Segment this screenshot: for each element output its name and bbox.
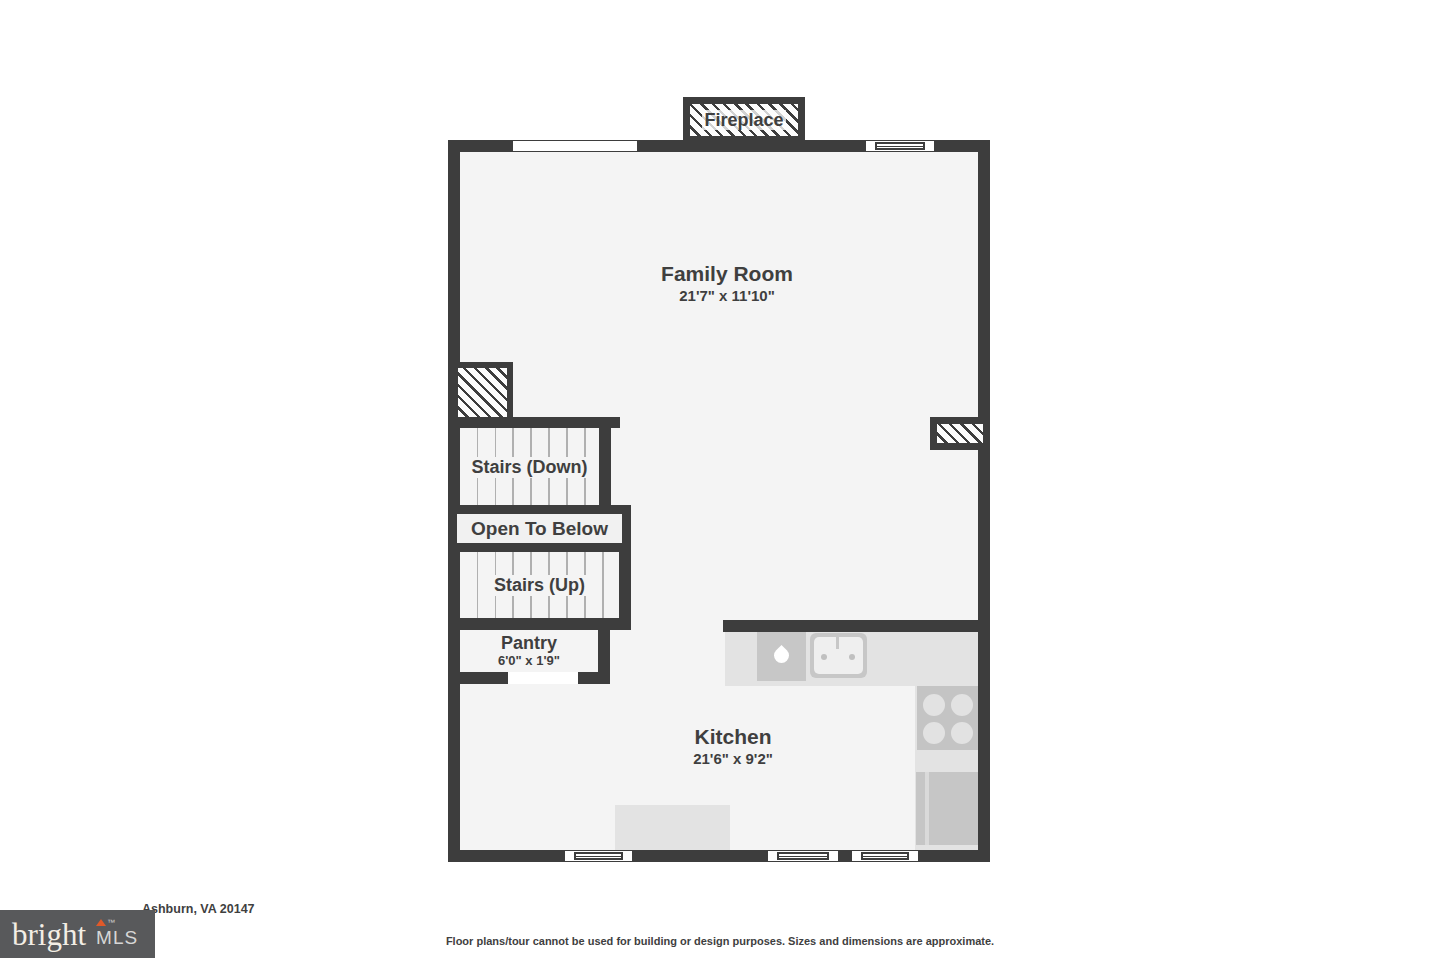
chimney-chase-symbol bbox=[452, 362, 513, 423]
logo-brand-text: bright bbox=[12, 919, 86, 950]
hatch-fill bbox=[458, 368, 507, 417]
pantry-label: Pantry bbox=[501, 633, 557, 653]
window-symbol bbox=[513, 141, 637, 151]
property-address: Ashburn, VA 20147 bbox=[142, 902, 255, 916]
logo-suffix-text: MLS bbox=[96, 927, 138, 949]
window-symbol bbox=[866, 141, 934, 151]
room-dimensions: 21'7" x 11'10" bbox=[661, 286, 793, 306]
window-frame bbox=[574, 852, 623, 860]
wall-segment bbox=[723, 620, 990, 632]
fireplace-label: Fireplace bbox=[702, 110, 785, 130]
sink-drain bbox=[821, 654, 827, 660]
stairs-down-area: Stairs (Down) bbox=[460, 428, 599, 507]
window-symbol bbox=[852, 851, 918, 861]
window-frame bbox=[875, 142, 925, 150]
burner-icon bbox=[951, 694, 973, 716]
floor-plan-page: Fireplace Family Room 21'7" x 11'10" Sta… bbox=[0, 0, 1440, 960]
open-to-below-label: Open To Below bbox=[471, 518, 608, 540]
window-frame bbox=[777, 852, 829, 860]
logo-trademark: ™ bbox=[107, 918, 115, 927]
room-dimensions: 21'6" x 9'2" bbox=[693, 749, 773, 769]
family-room-label: Family Room 21'7" x 11'10" bbox=[661, 262, 793, 306]
window-symbol bbox=[565, 851, 632, 861]
wall-segment bbox=[448, 618, 631, 630]
fireplace-symbol: Fireplace bbox=[683, 97, 805, 143]
stairs-down-label: Stairs (Down) bbox=[467, 457, 591, 478]
droplet-icon bbox=[771, 645, 792, 666]
pantry-area: Pantry 6'0" x 1'9" bbox=[460, 630, 598, 672]
burner-icon bbox=[923, 722, 945, 744]
kitchen-island bbox=[615, 805, 730, 850]
refrigerator-door-line bbox=[925, 772, 929, 845]
sink-drain bbox=[849, 654, 855, 660]
chimney-chase-symbol bbox=[930, 417, 990, 450]
open-to-below-area: Open To Below bbox=[448, 505, 631, 552]
kitchen-label: Kitchen 21'6" x 9'2" bbox=[693, 725, 773, 769]
dishwasher-symbol bbox=[757, 632, 806, 681]
pantry-door-opening bbox=[508, 672, 578, 684]
sink-symbol bbox=[810, 633, 867, 678]
stove-symbol bbox=[917, 686, 978, 750]
window-symbol bbox=[768, 851, 838, 861]
burner-icon bbox=[923, 694, 945, 716]
stairs-up-area: Stairs (Up) bbox=[460, 552, 619, 618]
wall-segment bbox=[599, 417, 611, 516]
room-name: Kitchen bbox=[693, 725, 773, 749]
faucet-icon bbox=[836, 637, 839, 649]
room-name: Family Room bbox=[661, 262, 793, 286]
burner-icon bbox=[951, 722, 973, 744]
pantry-dimensions: 6'0" x 1'9" bbox=[498, 653, 560, 669]
wall-segment bbox=[578, 672, 610, 684]
hatch-fill bbox=[937, 424, 983, 443]
logo-triangle-icon bbox=[96, 919, 106, 926]
stairs-up-label: Stairs (Up) bbox=[490, 575, 589, 596]
window-frame bbox=[861, 852, 909, 860]
wall-segment bbox=[448, 672, 508, 684]
refrigerator-symbol bbox=[916, 772, 978, 845]
brightmls-logo: bright ™ MLS bbox=[0, 910, 155, 958]
disclaimer-text: Floor plans/tour cannot be used for buil… bbox=[0, 935, 1440, 947]
